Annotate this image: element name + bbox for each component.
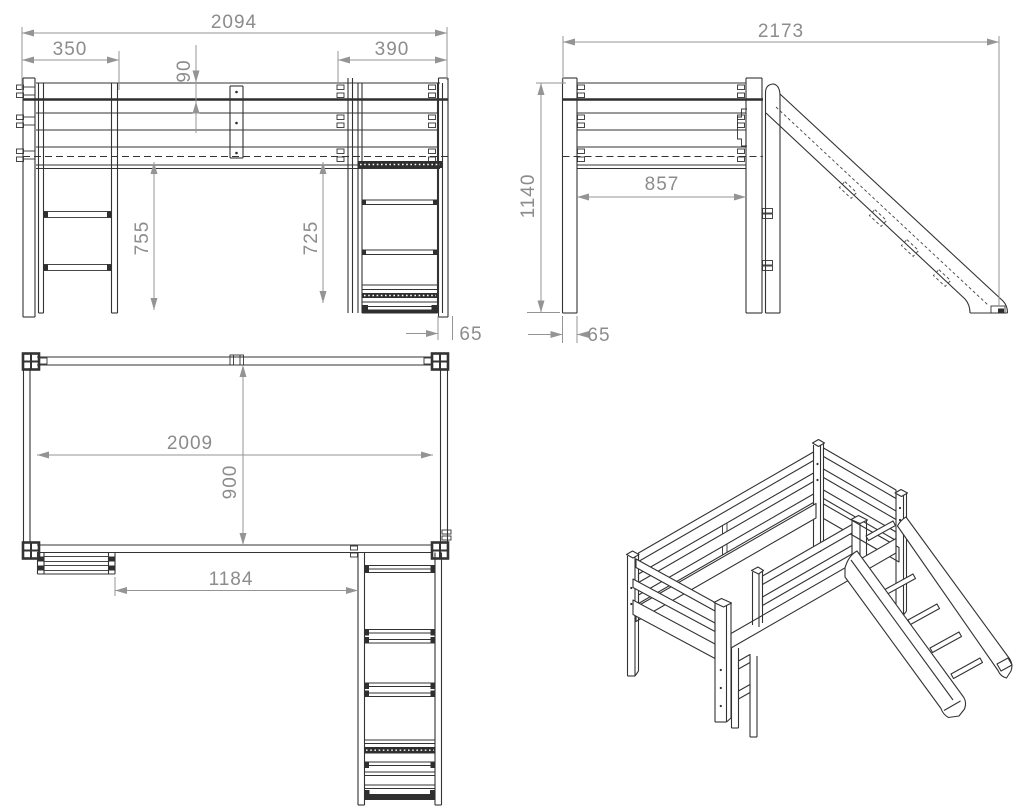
side-elevation-view: 2173 1140 857 65 (518, 21, 1008, 346)
technical-drawing-page: 2094 350 390 90 755 725 65 (0, 0, 1020, 812)
dimension-front-slide-offset: 390 (375, 39, 410, 60)
plan-view: 2009 900 1184 (23, 354, 451, 806)
slide-plan (351, 530, 452, 805)
front-elevation-view: 2094 350 390 90 755 725 65 (17, 12, 483, 345)
connector-bolts-side-right (738, 85, 745, 162)
ladder-front (39, 83, 118, 313)
dimension-front-slide-width: 65 (459, 324, 482, 345)
dimension-plan-width: 900 (220, 465, 241, 500)
dimension-front-clearance-right: 725 (301, 221, 322, 256)
dimension-front-total-width: 2094 (211, 12, 257, 33)
dimension-side-total-depth: 2173 (758, 21, 804, 42)
connector-bolts-left (17, 85, 36, 162)
slide-side (766, 94, 1008, 313)
loft-bed-technical-drawing: 2094 350 390 90 755 725 65 (0, 0, 1020, 812)
dimension-side-post-width: 65 (587, 325, 610, 346)
side-dimensions: 2173 1140 857 65 (518, 21, 999, 346)
ladder-isometric (732, 648, 758, 737)
connector-bolts-side-left (578, 85, 585, 162)
dimension-plan-length: 2009 (167, 433, 213, 454)
dimension-side-span: 857 (645, 174, 680, 195)
dimension-front-rail-height: 90 (174, 59, 195, 82)
ladder-plan (38, 553, 116, 575)
slide-steps-front (358, 161, 442, 314)
dimension-side-height: 1140 (518, 174, 539, 219)
right-post-front (429, 78, 449, 317)
dimension-plan-ladder-to-slide: 1184 (209, 569, 254, 590)
corner-posts-plan (23, 354, 448, 559)
slide-support-post (766, 84, 781, 313)
dimension-front-ladder-offset: 350 (53, 39, 88, 60)
isometric-view (627, 440, 1013, 738)
dimension-front-clearance-left: 755 (132, 221, 153, 256)
